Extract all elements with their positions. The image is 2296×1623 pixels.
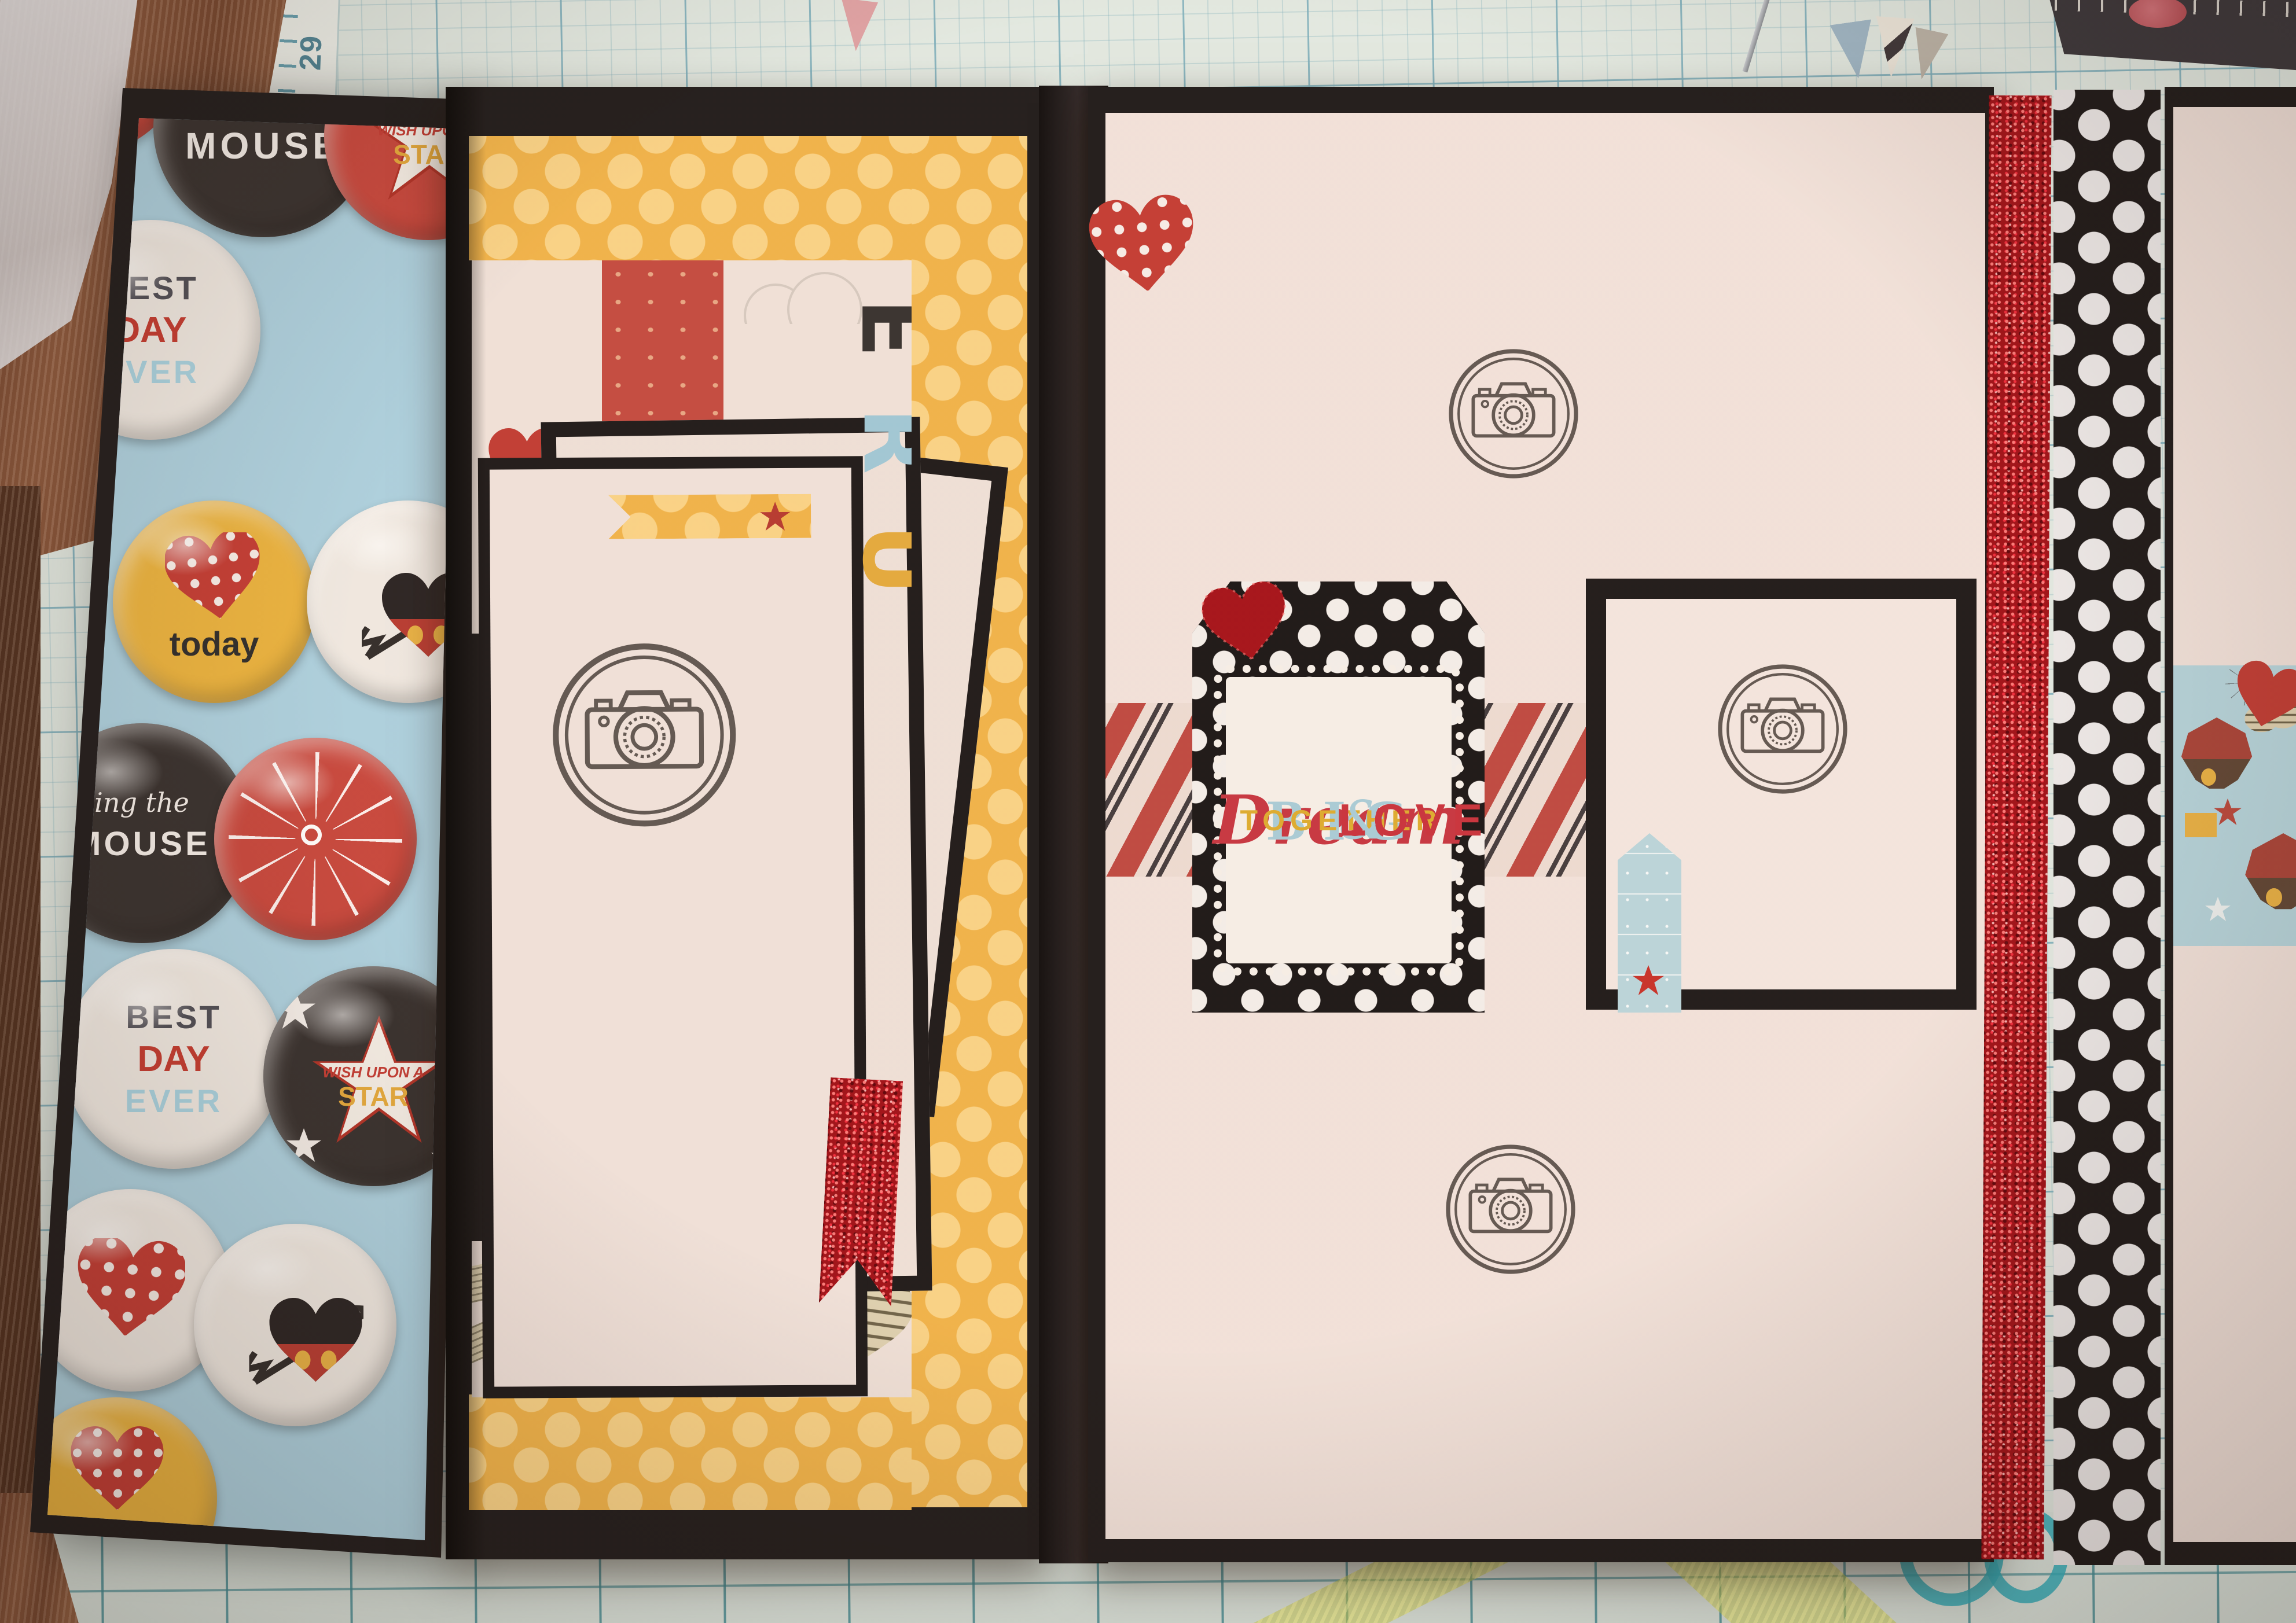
yellow-banner xyxy=(608,494,811,539)
marquee-letter-u: U xyxy=(843,524,912,595)
photo-card-front xyxy=(490,468,856,1386)
scrapbook-album-photo: 29 28 MOUSE WISH UPON A STAR xyxy=(0,0,2296,1623)
balloon-dot-2 xyxy=(2266,888,2282,907)
polka-heart-icon-3 xyxy=(69,1426,165,1510)
album-middle-page: E R U xyxy=(446,87,1050,1559)
paper-star-red xyxy=(2214,798,2242,825)
banner-star xyxy=(760,502,790,531)
photo-mat-front xyxy=(478,456,868,1398)
camera-stamp-icon xyxy=(545,636,743,834)
marquee-letter-e: E xyxy=(842,299,912,358)
paper-star-white xyxy=(2205,897,2231,921)
red-glitter-strip xyxy=(1981,95,2051,1560)
best-day-line2: DAY xyxy=(41,310,260,351)
best-day2-line2: DAY xyxy=(64,1039,284,1080)
tag-word-love: LOVE xyxy=(1339,794,1489,847)
polka-heart-diecut xyxy=(1086,192,1200,297)
hot-air-balloon-2 xyxy=(2243,833,2296,926)
badge-heart-arrow-2 xyxy=(194,1224,396,1426)
camera-stamp-top xyxy=(1444,344,1583,483)
best-day2-line1: BEST xyxy=(64,998,284,1036)
flap-fold-shadow xyxy=(446,87,486,1559)
next-page-card xyxy=(2173,107,2296,1542)
polka-heart-icon-2 xyxy=(75,1238,185,1337)
camera-stamp-bottom xyxy=(1441,1140,1580,1279)
yellow-polka-band-bottom xyxy=(469,1394,912,1510)
black-white-dot-strip xyxy=(2053,90,2161,1565)
pink-triangle-scrap xyxy=(835,0,878,53)
badge-fireworks xyxy=(214,738,417,940)
album-right-page: Dream BIG TOGETHER & LOVE xyxy=(1088,87,1994,1562)
blue-arrow-tag xyxy=(1618,833,1681,1013)
balloon-basket-2 xyxy=(2185,813,2217,837)
blue-tag-star xyxy=(1633,965,1664,995)
badge-today: today xyxy=(113,500,315,703)
mat-ruler-number-29: 29 xyxy=(293,34,329,71)
best-day-line3: EVER xyxy=(41,353,260,391)
album-left-flap: MOUSE WISH UPON A STAR BEST DAY EVER tod… xyxy=(23,81,480,1568)
fireworks-core xyxy=(301,825,322,845)
badge-best-day-bottom: BEST DAY EVER xyxy=(64,949,284,1169)
best-day2-line3: EVER xyxy=(64,1082,284,1120)
marquee-letter-r: R xyxy=(844,407,912,474)
mickey-heart-arrow-icon-2 xyxy=(227,1269,363,1385)
album-next-page xyxy=(2165,87,2296,1565)
polka-heart-icon xyxy=(165,532,263,619)
best-day-line1: BEST xyxy=(41,269,260,307)
glitter-heart xyxy=(1199,578,1294,665)
camera-stamp-frame xyxy=(1713,660,1852,798)
badge-today-label: today xyxy=(113,625,315,664)
right-page-card: Dream BIG TOGETHER & LOVE xyxy=(1105,113,1985,1539)
dream-tag-panel: Dream BIG TOGETHER & LOVE xyxy=(1226,677,1452,963)
badge-best-day-top: BEST DAY EVER xyxy=(41,220,260,440)
white-star-deco-2 xyxy=(286,1128,321,1162)
balloon-dot xyxy=(2201,768,2216,786)
